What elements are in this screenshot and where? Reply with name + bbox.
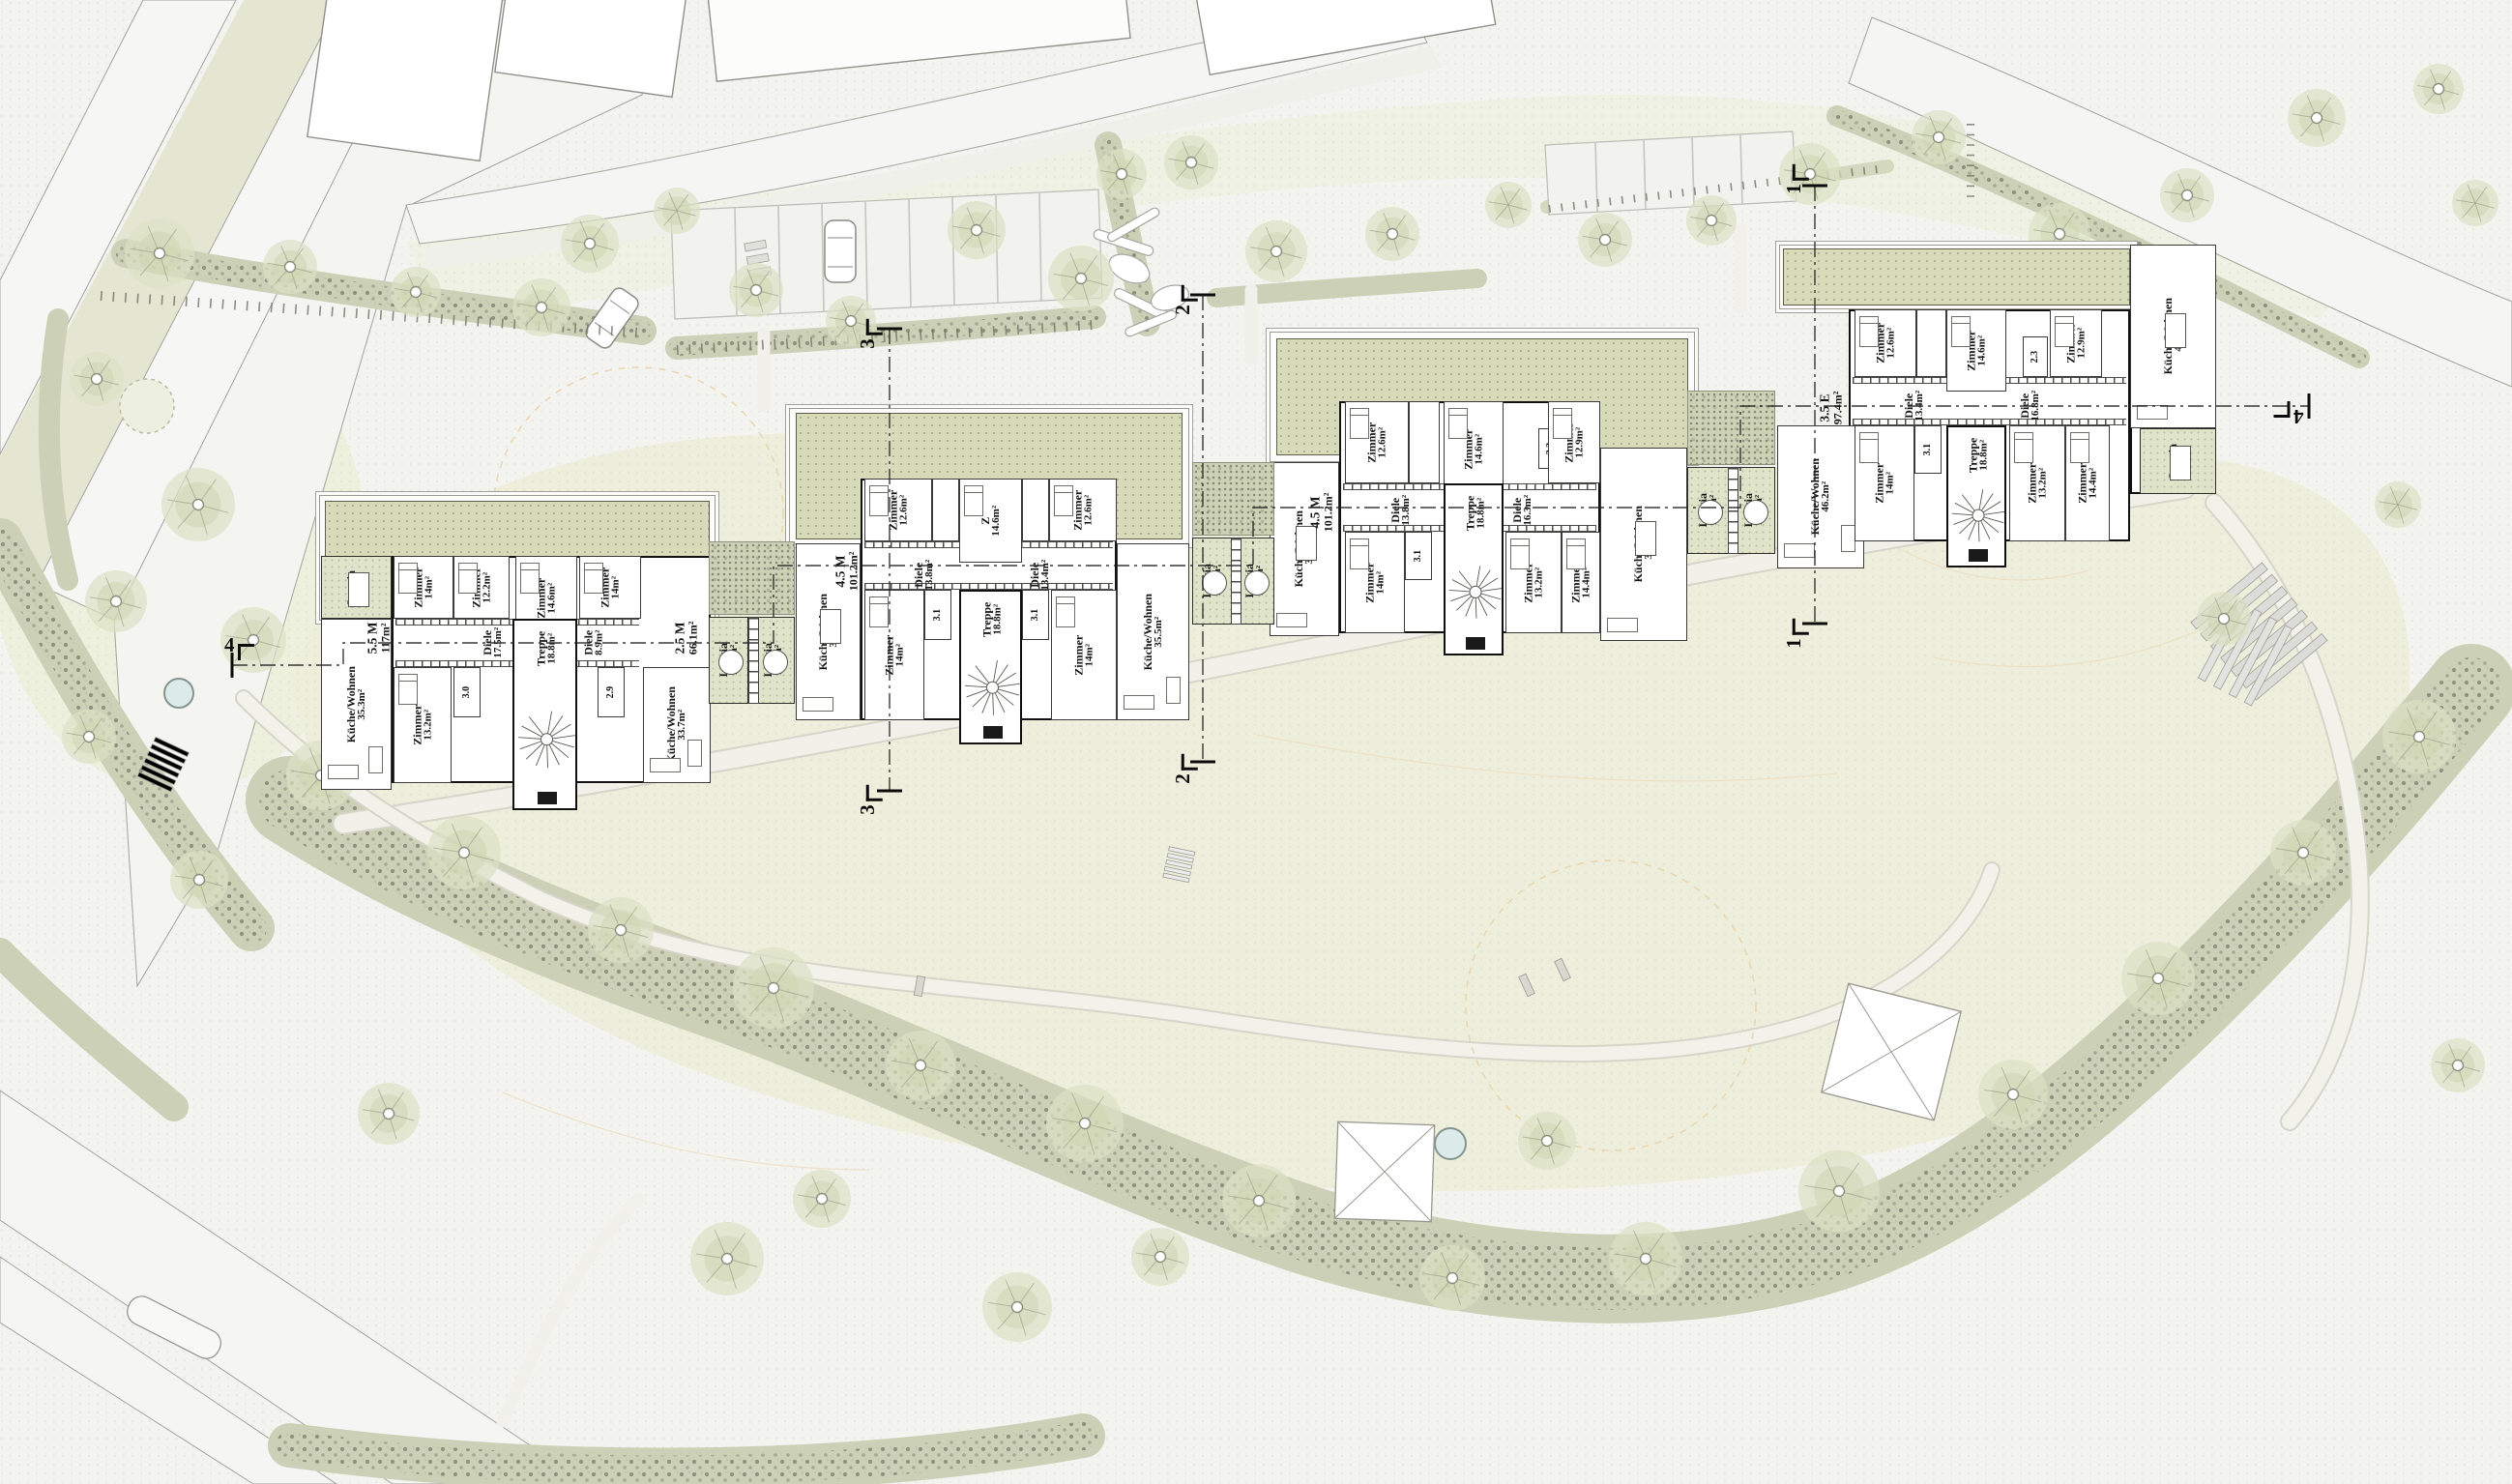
round-table-furniture — [1244, 570, 1270, 596]
room-area: 117m² — [379, 624, 391, 654]
room-zimmer: Zimmer14.6m² — [1946, 309, 2006, 392]
room-bath: 3.1 — [1405, 532, 1432, 580]
site-plan-canvas: Loggia15m²Küche/Wohnen35.3m²Zimmer14m²Zi… — [0, 0, 2512, 1484]
apartment-label: Diele16.3m² — [1509, 486, 1536, 535]
room-area: 13.8m² — [1402, 495, 1413, 526]
room-zimmer: Zimmer12.6m² — [1345, 401, 1409, 483]
room-area: 12.2m² — [482, 572, 493, 603]
stair-label: Treppe18.8m² — [1446, 491, 1505, 536]
gap-loggia: Loggia13.7m² — [1687, 467, 1729, 554]
room-label-text: 3.1 — [1923, 444, 1933, 456]
room-label-text: Küche/Wohnen46.2m² — [1809, 458, 1831, 535]
round-table-furniture — [1202, 570, 1227, 596]
stairwell: Treppe18.8m² — [1946, 425, 2006, 567]
stair-label: Treppe18.8m² — [1948, 433, 2008, 478]
sofa-furniture — [1124, 695, 1154, 710]
room-label: 4.5 M101.2m² — [832, 543, 861, 599]
room-zimmer: Zimmer12.2m² — [453, 556, 510, 619]
armchair-furniture — [687, 740, 702, 767]
apartment-label: Diele16.8m² — [2017, 382, 2044, 430]
bed-furniture — [1510, 538, 1530, 569]
sofa-furniture — [650, 758, 681, 772]
sofa-furniture — [2137, 405, 2168, 420]
room-label-text: Zimmer14.4m² — [2076, 463, 2098, 504]
room-label-text: Diele16.8m² — [2019, 391, 2041, 422]
room-area: 17.5m² — [494, 627, 505, 658]
dining-table-furniture — [820, 609, 841, 644]
loggia-planter-divider — [1231, 538, 1241, 625]
room-area: 14.6m² — [547, 583, 558, 614]
room-label: Diele16.3m² — [1509, 486, 1536, 535]
room-label-text: 3.1 — [1031, 609, 1040, 622]
bed-furniture — [1350, 408, 1369, 439]
armchair-furniture — [368, 746, 383, 773]
room-label-text: Zimmer12.6m² — [887, 490, 909, 531]
bed-furniture — [584, 563, 603, 594]
room-label: 3.1 — [925, 591, 950, 639]
bed-furniture — [964, 485, 983, 516]
room-area: 14m² — [895, 644, 906, 666]
room-label-text: Küche/Wohnen35.5m² — [1142, 594, 1164, 670]
room-name: 3.1 — [933, 609, 943, 622]
bed-furniture — [1553, 408, 1572, 439]
room-zimmer: Zimmer14m² — [1855, 425, 1914, 541]
loggia: Loggia18.7m² — [2140, 428, 2216, 494]
room-label-text: 2.3 — [2030, 351, 2040, 364]
sofa-furniture — [803, 697, 833, 712]
bed-furniture — [869, 485, 889, 516]
table-furniture — [348, 572, 369, 607]
room-area: 18.8m² — [993, 604, 1004, 635]
room-area: 16.3m² — [1524, 495, 1534, 526]
room-name: 5.5 M — [365, 623, 379, 655]
bed-furniture — [1859, 316, 1879, 347]
room-area: 33.7m² — [678, 710, 688, 741]
sofa-furniture — [1784, 543, 1815, 558]
dining-table-furniture — [2165, 313, 2186, 348]
corridor-wardrobe — [864, 583, 1113, 590]
room-area: 12.6m² — [1378, 427, 1388, 458]
room-cell — [1022, 479, 1049, 541]
room-name: Z — [979, 516, 991, 524]
elevator-shaft — [983, 726, 1003, 739]
room-name: 2.5 M — [673, 623, 686, 655]
room-label-text: 4.5 M101.2m² — [833, 552, 859, 592]
room-area: 18.8m² — [1476, 498, 1487, 529]
room-label-text: Diele16.3m² — [1511, 495, 1533, 526]
room-zimmer: Zimmer14.4m² — [1562, 532, 1600, 633]
room-label-text: Diele13.8m² — [913, 560, 935, 591]
room-zimmer: Zimmer13.2m² — [394, 667, 452, 783]
room-label: Treppe18.8m² — [1948, 433, 2008, 478]
loggia-planter-divider — [748, 617, 759, 704]
room-label-text: Küche/Wohnen33.7m² — [665, 686, 687, 763]
bed-furniture — [1056, 597, 1075, 627]
room-label-text: Treppe18.8m² — [1967, 438, 1989, 473]
sofa-furniture — [1276, 613, 1307, 627]
room-label-text: 2.5 M66.1m² — [673, 622, 698, 655]
room-bath: 2.9 — [598, 667, 625, 717]
room-area: 35.3m² — [357, 689, 367, 720]
room-name: 2.3 — [2030, 351, 2040, 364]
bed-furniture — [2070, 432, 2089, 463]
bed-furniture — [458, 563, 478, 594]
room-label: 3.1 — [1915, 426, 1941, 473]
room-label-text: 5.5 M117m² — [365, 623, 391, 655]
round-table-furniture — [763, 650, 788, 675]
room-area: 12.6m² — [1886, 328, 1897, 359]
stair-label: Treppe18.8m² — [514, 626, 579, 671]
room-area: 101.2m² — [847, 552, 859, 592]
room-label-text: Zimmer12.6m² — [1071, 490, 1094, 531]
room-name: 3.1 — [1031, 609, 1040, 622]
hedge-strip — [1192, 462, 1274, 536]
room-area: 12.9m² — [2077, 328, 2088, 359]
stair-label: Treppe18.8m² — [961, 597, 1024, 642]
room-label-text: Zimmer14m² — [1072, 635, 1095, 676]
room-zimmer: Zimmer14m² — [1345, 532, 1405, 633]
room-area: 14.4m² — [1582, 567, 1592, 598]
room-label: 3.5 E97.4m² — [1816, 380, 1845, 436]
room-zimmer: Zimmer14m² — [864, 590, 924, 720]
gap-loggia: Loggia13.8m² — [1192, 538, 1232, 625]
bed-furniture — [1566, 538, 1586, 569]
room-label: 2.9 — [599, 668, 624, 716]
room-label-text: Zimmer13.2m² — [411, 705, 433, 745]
room-area: 8.9m² — [595, 630, 605, 655]
sofa-furniture — [328, 765, 359, 779]
room-zimmer: Zimmer14m² — [394, 556, 453, 619]
stairwell: Treppe18.8m² — [1444, 483, 1504, 655]
room-zimmer: Zimmer14m² — [1051, 590, 1117, 720]
bed-furniture — [2014, 432, 2033, 463]
room-area: 18.8m² — [1979, 440, 1990, 471]
corridor-wardrobe — [1853, 419, 2126, 425]
room-area: 13.8m² — [925, 560, 936, 591]
room-label-text: Diele13.4m² — [1029, 560, 1051, 591]
apartment-label: 4.5 M101.2m² — [832, 543, 861, 599]
room-label-text: Küche/Wohnen35.3m² — [345, 666, 367, 742]
round-table-furniture — [718, 650, 744, 675]
room-zimmer: Zimmer14m² — [579, 556, 641, 619]
room-area: 13.4m² — [1041, 560, 1052, 591]
room-area: 14.6m² — [1977, 335, 1988, 366]
room-zimmer: Zimmer13.2m² — [2009, 425, 2065, 541]
room-label-text: 2.9 — [606, 686, 616, 699]
room-label-text: Diele8.9m² — [582, 630, 604, 655]
room-label: 4.5 M101.2m² — [1306, 484, 1335, 540]
room-kueche-wohnen: Küche/Wohnen35.5m² — [1117, 543, 1189, 720]
room-name: Küche/Wohnen — [1142, 594, 1154, 670]
room-label: 5.5 M117m² — [364, 609, 393, 667]
round-table-furniture — [1698, 500, 1723, 525]
bed-furniture — [2055, 316, 2074, 347]
apartment-label: 4.5 M101.2m² — [1306, 484, 1335, 540]
bed-furniture — [1951, 316, 1971, 347]
room-label-text: 3.1 — [933, 609, 943, 622]
room-zimmer: Zimmer14.4m² — [2065, 425, 2110, 541]
room-zimmer: Zimmer13.2m² — [1505, 532, 1562, 633]
room-cell — [1916, 309, 1946, 377]
room-label-text: Zimmer14m² — [883, 635, 905, 676]
armchair-furniture — [1166, 677, 1181, 704]
room-cell — [1409, 401, 1440, 483]
room-name: Küche/Wohnen — [345, 666, 357, 742]
bed-furniture — [1350, 538, 1369, 569]
room-label: Treppe18.8m² — [961, 597, 1024, 642]
room-label-text: 3.0 — [462, 686, 472, 699]
room-kueche-wohnen: Küche/Wohnen33.7m² — [643, 667, 711, 783]
room-name: 3.0 — [462, 686, 472, 699]
hedge-strip — [709, 541, 795, 615]
room-label-text: Diele13.8m² — [1389, 495, 1412, 526]
room-area: 14.6m² — [991, 506, 1002, 537]
room-area: 12.6m² — [899, 495, 910, 526]
apartment-label: 5.5 M117m² — [364, 609, 393, 667]
room-label: Diele13.8m² — [1387, 486, 1415, 535]
apartment-label: Diele17.5m² — [480, 619, 507, 667]
room-area: 66.1m² — [686, 622, 698, 655]
room-area: 97.4m² — [1831, 392, 1843, 425]
room-label: 3.1 — [1023, 591, 1048, 639]
room-kueche-wohnen: Küche/Wohnen46.2m² — [1777, 425, 1864, 568]
room-label-text: Treppe18.8m² — [981, 602, 1004, 637]
room-bath: 3.0 — [453, 667, 481, 717]
room-area: 18.8m² — [547, 633, 558, 664]
bed-furniture — [520, 563, 540, 594]
room-bath: 3.1 — [1022, 590, 1049, 640]
room-area: 35.5m² — [1154, 617, 1164, 648]
bed-furniture — [1054, 485, 1073, 516]
room-area: 46.2m² — [1822, 481, 1832, 512]
gap-loggia: Loggia13.8m² — [709, 617, 748, 704]
room-zimmer: Zimmer12.6m² — [1049, 479, 1117, 541]
table-furniture — [2170, 446, 2191, 480]
stairwell: Treppe18.8m² — [959, 590, 1022, 744]
room-label: Treppe18.8m² — [514, 626, 579, 671]
room-zimmer: Zimmer12.6m² — [1855, 309, 1916, 377]
room-area: 14m² — [1376, 571, 1387, 594]
room-area: 13.2m² — [2038, 468, 2049, 499]
buildings-layer: Loggia15m²Küche/Wohnen35.3m²Zimmer14m²Zi… — [0, 0, 2512, 1484]
room-label-text: Zimmer13.2m² — [2026, 463, 2048, 504]
bed-furniture — [1448, 408, 1468, 439]
elevator-shaft — [538, 792, 557, 804]
room-label-text: 3.1 — [1414, 550, 1423, 563]
room-area: 14m² — [1885, 472, 1896, 494]
room-label: 3.0 — [454, 668, 480, 716]
room-area: 12.6m² — [1084, 495, 1095, 526]
room-area: 14m² — [611, 576, 622, 598]
room-label: Diele13.4m² — [1901, 382, 1928, 430]
room-label: 2.3 — [2024, 337, 2047, 376]
room-area: 13.4m² — [1915, 391, 1926, 422]
room-zimmer: Z14.6m² — [959, 479, 1022, 563]
room-area: 14m² — [424, 576, 435, 598]
room-label-text: Diele13.4m² — [1903, 391, 1925, 422]
elevator-shaft — [1969, 549, 1988, 562]
room-area: 12.9m² — [1575, 427, 1586, 458]
bed-furniture — [1859, 432, 1879, 463]
room-name: 3.1 — [1414, 550, 1423, 563]
room-area: 14.6m² — [1475, 434, 1485, 465]
apartment-label: 2.5 M66.1m² — [671, 609, 700, 667]
sofa-furniture — [1607, 618, 1638, 632]
room-zimmer: Zimmer12.9m² — [1548, 401, 1600, 483]
room-label: Diele16.8m² — [2017, 382, 2044, 430]
room-zimmer: Zimmer12.9m² — [2050, 309, 2102, 377]
room-label-text: Diele17.5m² — [482, 627, 504, 658]
room-zimmer: Zimmer12.6m² — [864, 479, 932, 541]
room-bath: 2.3 — [2023, 336, 2048, 377]
room-area: 14.4m² — [2088, 468, 2099, 499]
room-label: Diele17.5m² — [480, 619, 507, 667]
room-name: 4.5 M — [1308, 497, 1322, 529]
apartment-label: Diele13.4m² — [1901, 382, 1928, 430]
hedge-strip — [1687, 391, 1775, 465]
armchair-furniture — [1841, 525, 1855, 552]
loggia-planter-divider — [1728, 467, 1738, 554]
room-area: 13.2m² — [424, 710, 434, 741]
room-label-text: Treppe18.8m² — [1464, 496, 1486, 531]
room-name: 3.5 E — [1818, 393, 1831, 422]
room-bath: 3.1 — [1914, 425, 1942, 474]
elevator-shaft — [1466, 637, 1485, 650]
bed-furniture — [398, 563, 418, 594]
room-label: 3.1 — [1406, 533, 1431, 579]
bed-furniture — [869, 597, 889, 627]
room-kueche-wohnen: Küche/Wohnen35.5m² — [1600, 448, 1687, 641]
room-label: Treppe18.8m² — [1446, 491, 1505, 536]
room-label: Diele8.9m² — [580, 619, 607, 667]
room-kueche-wohnen: Küche/Wohnen44.7m² — [2130, 245, 2216, 428]
room-name: 4.5 M — [833, 556, 847, 588]
dining-table-furniture — [1635, 521, 1656, 556]
room-name: 3.1 — [1923, 444, 1933, 456]
room-label-text: Treppe18.8m² — [536, 631, 558, 666]
apartment-label: Diele8.9m² — [580, 619, 607, 667]
room-bath: 3.1 — [924, 590, 951, 640]
room-label-text: 4.5 M101.2m² — [1308, 493, 1333, 533]
room-area: 101.2m² — [1322, 493, 1333, 533]
room-area: 14m² — [1085, 644, 1095, 666]
room-cell — [932, 479, 959, 541]
room-label-text: Zimmer14m² — [1873, 463, 1895, 504]
stairwell: Treppe18.8m² — [512, 619, 577, 810]
room-area: 13.2m² — [1534, 567, 1545, 598]
room-label: 2.5 M66.1m² — [671, 609, 700, 667]
round-table-furniture — [1743, 500, 1768, 525]
apartment-label: Diele13.8m² — [1387, 486, 1415, 535]
apartment-label: 3.5 E97.4m² — [1816, 380, 1845, 436]
bed-furniture — [398, 674, 418, 705]
green-roof — [1783, 248, 2130, 306]
room-label-text: 3.5 E97.4m² — [1818, 392, 1843, 425]
room-area: 16.8m² — [2031, 391, 2042, 422]
room-name: 2.9 — [606, 686, 616, 699]
